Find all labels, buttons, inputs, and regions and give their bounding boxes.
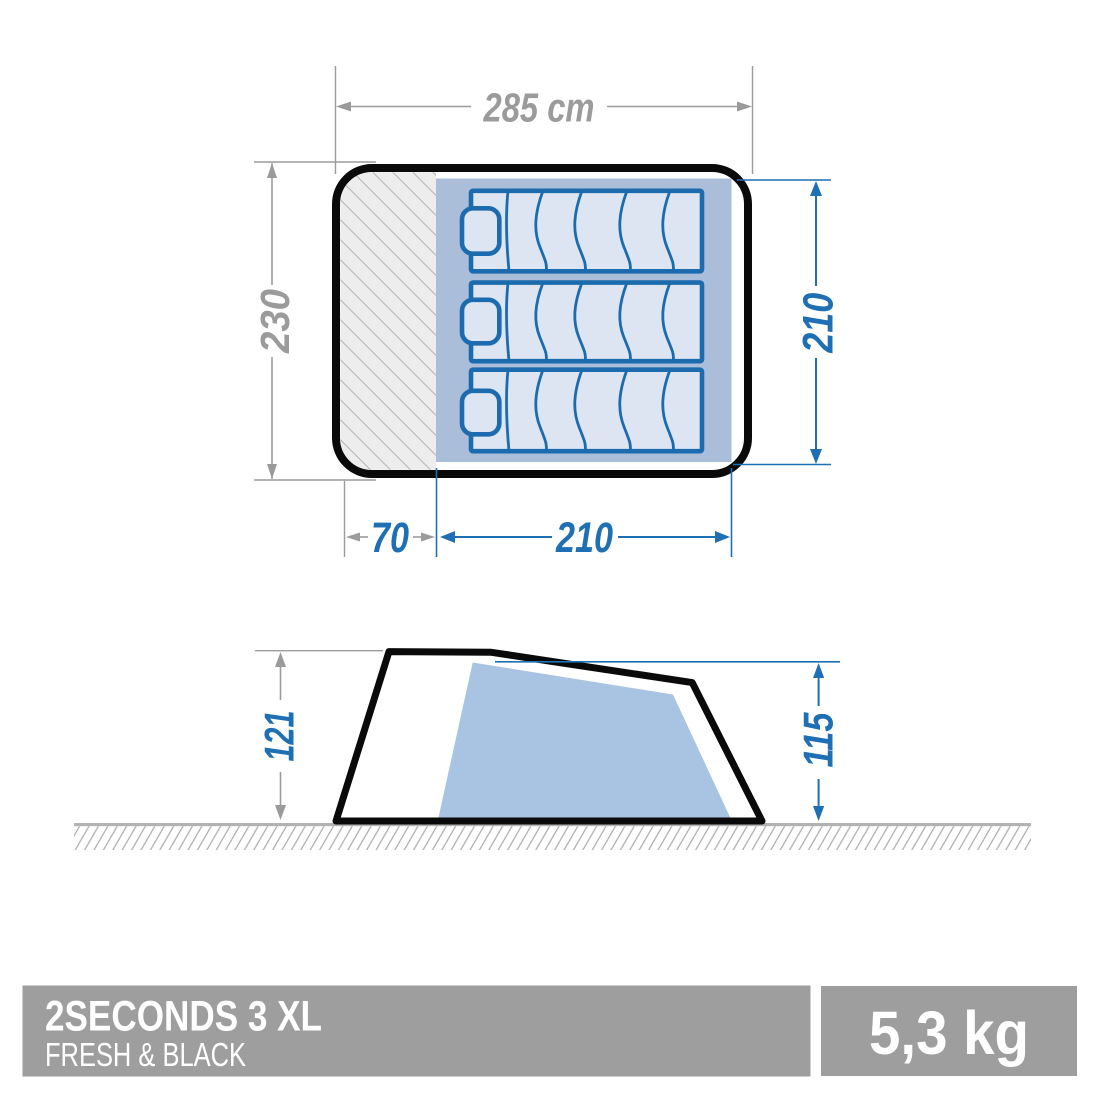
svg-text:285 cm: 285 cm [483, 84, 595, 130]
svg-text:230: 230 [252, 289, 298, 354]
svg-text:210: 210 [555, 514, 613, 562]
svg-text:2SECONDS 3 XL: 2SECONDS 3 XL [45, 993, 322, 1041]
svg-text:115: 115 [795, 712, 842, 768]
svg-text:121: 121 [256, 711, 303, 762]
svg-text:5,3 kg: 5,3 kg [869, 999, 1029, 1067]
svg-text:210: 210 [795, 293, 843, 354]
svg-text:FRESH & BLACK: FRESH & BLACK [45, 1037, 246, 1074]
svg-text:70: 70 [371, 514, 409, 562]
